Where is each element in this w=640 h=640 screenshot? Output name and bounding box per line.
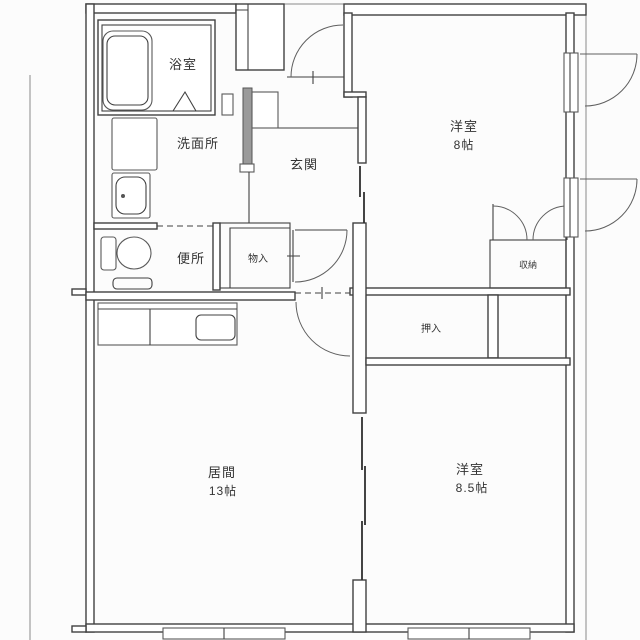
- bathtub: [103, 31, 152, 110]
- wall-top-right: [344, 4, 586, 15]
- wall-mid-left: [86, 292, 295, 300]
- room-label-toilet: 便所: [177, 251, 205, 266]
- toilet-storage-divider: [213, 223, 220, 290]
- toilet-top-wall: [94, 223, 157, 229]
- floorplan-page: 浴室 洗面所 玄関 便所 物入 洋室 8帖 収納 押入 居間 13帖 洋室 8.…: [0, 0, 640, 640]
- room-size-western2: 8.5帖: [456, 480, 489, 495]
- oshiire-bottom-wall: [366, 358, 570, 365]
- closet-door-leaves: [493, 204, 567, 240]
- room-label-closet: 収納: [519, 259, 537, 270]
- living-door-arc: [296, 302, 350, 356]
- shoe-cabinet: [252, 92, 278, 128]
- toilet-mat: [113, 278, 152, 289]
- entrance-east-jog: [344, 92, 366, 97]
- room-label-western2: 洋室: [456, 462, 484, 477]
- corridor-door-arc: [295, 230, 347, 282]
- closet-door-arcs: [493, 206, 567, 240]
- casement-window-lower-swing: [580, 179, 637, 231]
- washing-machine-pan: [112, 118, 157, 170]
- toilet-tank: [101, 237, 116, 270]
- wall-stub-left-bottom: [72, 626, 86, 632]
- entrance-pillar: [236, 4, 284, 70]
- wall-left: [86, 4, 94, 632]
- room-label-washroom: 洗面所: [177, 136, 219, 151]
- floorplan-drawing: 浴室 洗面所 玄関 便所 物入 洋室 8帖 収納 押入 居間 13帖 洋室 8.…: [0, 0, 640, 640]
- corridor-east-wall: [353, 223, 366, 413]
- room-label-bathroom: 浴室: [169, 57, 197, 72]
- vanity-faucet-dot: [121, 194, 125, 198]
- shaded-wall-cap: [240, 164, 254, 172]
- room-size-living: 13帖: [209, 483, 237, 498]
- room-label-hall-storage: 物入: [248, 252, 268, 265]
- wall-top-left: [86, 4, 236, 13]
- wall-mid-right: [350, 288, 570, 295]
- room-label-living: 居間: [208, 465, 236, 480]
- casement-window-lower: [564, 178, 578, 237]
- wall-stub-left-mid: [72, 289, 86, 295]
- corridor-door-leaf: [287, 230, 347, 282]
- toilet-bowl: [117, 237, 151, 269]
- western1-sliding-door: [360, 166, 364, 223]
- entrance-east-wall: [344, 13, 352, 97]
- room-label-oshiire: 押入: [421, 322, 441, 335]
- room-size-western1: 8帖: [454, 137, 475, 152]
- wall-post-small: [222, 94, 233, 115]
- casement-window-upper: [564, 53, 578, 112]
- entrance-door-arc: [291, 25, 343, 77]
- western2-sliding-partition: [362, 417, 365, 580]
- casement-window-upper-swing: [580, 54, 637, 106]
- oshiire-side-lines: [366, 295, 566, 358]
- shaded-wall-post: [243, 88, 252, 165]
- vanity-unit: [112, 173, 150, 218]
- room-label-western1: 洋室: [450, 119, 478, 134]
- western1-west-wall-upper: [358, 97, 366, 163]
- oshiire-divider: [488, 295, 498, 358]
- living-partition-wall-lower: [353, 580, 366, 632]
- room-label-entrance: 玄関: [290, 157, 318, 172]
